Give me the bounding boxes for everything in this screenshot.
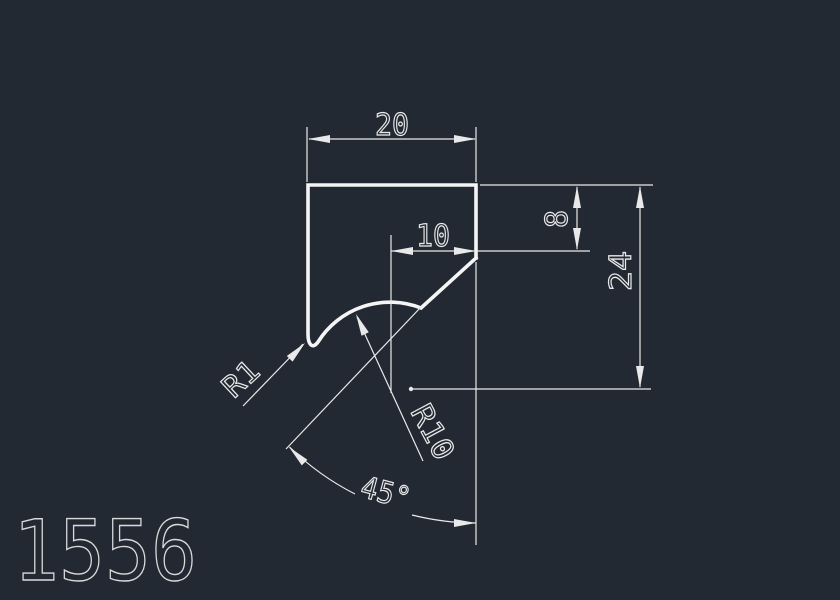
arrowhead-bottom	[573, 228, 581, 250]
dimension-20: 20	[307, 108, 476, 182]
radius-leader-r10: R10	[356, 314, 461, 466]
arrowhead	[287, 343, 305, 362]
dim-10-label: 10	[416, 219, 450, 254]
arrowhead-left	[308, 135, 330, 143]
arrowhead-top	[573, 186, 581, 208]
r1-label-group: R1	[216, 354, 268, 406]
cad-viewport: 20 10 8 24	[0, 0, 840, 600]
angle-45-label: 45°	[357, 470, 414, 517]
r10-label: R10	[403, 399, 461, 467]
arrowhead-top	[636, 186, 644, 208]
arrowhead-bottom	[636, 366, 644, 388]
angle-label-group: 45°	[357, 470, 414, 517]
dim-20-label: 20	[375, 108, 409, 143]
part-number-label: 1556	[13, 502, 197, 600]
dimension-8: 8	[540, 186, 581, 250]
angle-dimension-45: 45°	[286, 262, 476, 545]
angle-arc-left	[290, 447, 356, 494]
arrowhead-right	[454, 247, 476, 255]
r1-label: R1	[216, 354, 268, 406]
dimension-24: 24	[409, 186, 651, 391]
arrowhead-right	[454, 135, 476, 143]
arrowhead-start	[289, 447, 307, 465]
dim-8-label: 8	[540, 210, 575, 228]
dim-24-label: 24	[604, 251, 639, 291]
arrowhead-left	[391, 247, 413, 255]
technical-drawing: 20 10 8 24	[0, 0, 840, 600]
arrowhead-end	[454, 519, 476, 527]
r10-label-group: R10	[403, 399, 461, 467]
arrowhead	[356, 314, 369, 336]
extension-line-dot	[409, 387, 413, 391]
radius-leader-r1: R1	[216, 343, 305, 406]
profile-outline	[308, 185, 476, 346]
profile-path	[308, 185, 476, 346]
